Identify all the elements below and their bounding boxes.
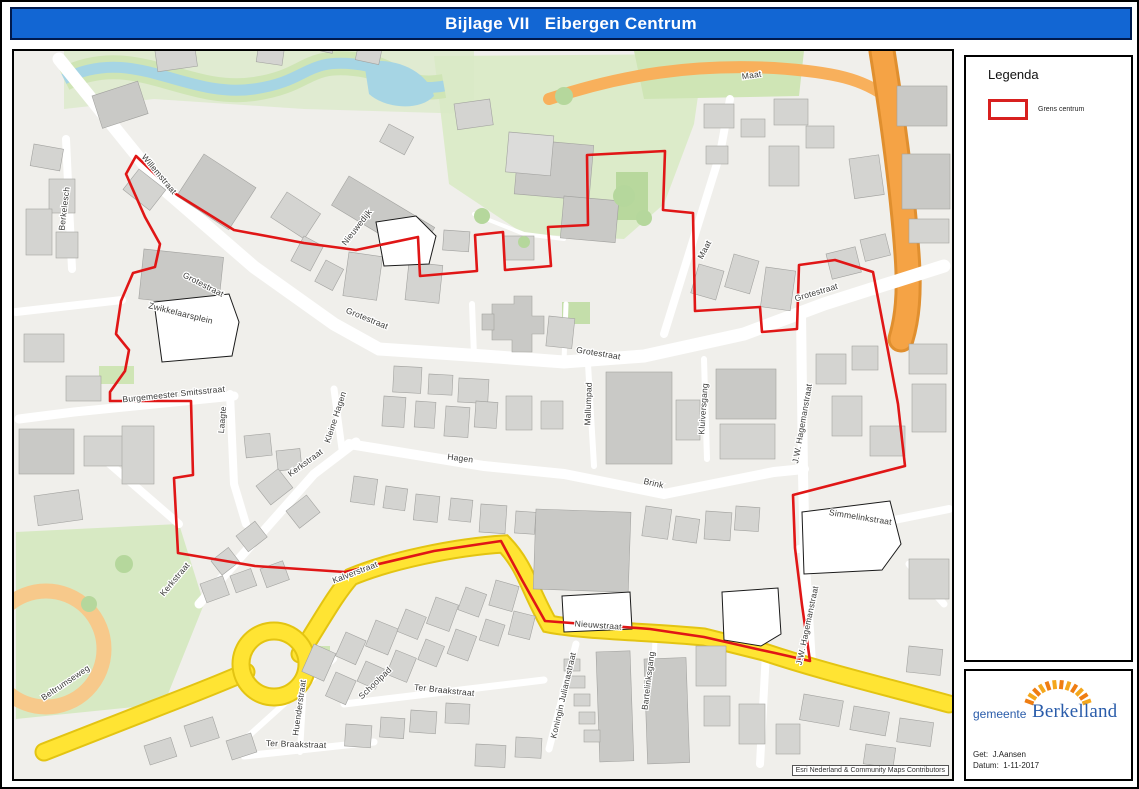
- legend-heading: Legenda: [988, 67, 1039, 82]
- legend-box: Legenda Grens centrum: [964, 55, 1133, 662]
- berkelland-wordmark: Berkelland: [1032, 701, 1117, 723]
- legend-item-label: Grens centrum: [1038, 106, 1084, 113]
- gemeente-label: gemeente: [973, 707, 1026, 721]
- street-label: Mallumpad: [582, 382, 594, 426]
- date-line: Datum: 1-11-2017: [973, 760, 1039, 771]
- sheet-metadata: Get: J.Aansen Datum: 1-11-2017: [973, 749, 1039, 771]
- map-sheet-page: Bijlage VII Eibergen Centrum: [0, 0, 1139, 789]
- legend-item: Grens centrum: [988, 99, 1084, 120]
- map-attribution: Esri Nederland & Community Maps Contribu…: [792, 765, 949, 776]
- title-bar: Bijlage VII Eibergen Centrum: [10, 7, 1132, 40]
- municipality-box: gemeente Berkelland Get: J.Aansen Datum:…: [964, 669, 1133, 781]
- map-canvas: BerkeleschWillemstraatGrotestraatZwikkel…: [12, 49, 954, 781]
- page-title: Bijlage VII Eibergen Centrum: [445, 14, 697, 34]
- drawn-by-line: Get: J.Aansen: [973, 749, 1039, 760]
- street-label: Ter Braakstraat: [266, 738, 327, 750]
- map-drawing: BerkeleschWillemstraatGrotestraatZwikkel…: [14, 51, 954, 781]
- boundary-swatch: [988, 99, 1028, 120]
